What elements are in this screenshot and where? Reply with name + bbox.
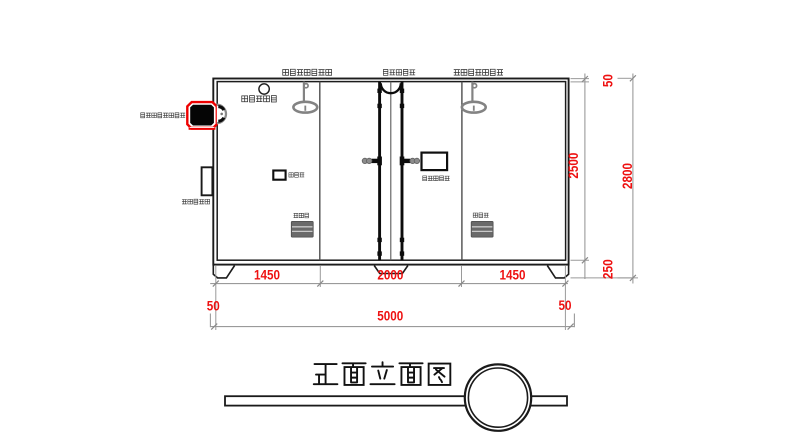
- svg-text:2500: 2500: [566, 153, 582, 179]
- svg-text:50: 50: [559, 298, 572, 314]
- svg-text:1450: 1450: [254, 268, 280, 284]
- svg-text:1450: 1450: [500, 268, 526, 284]
- svg-text:2800: 2800: [620, 163, 636, 189]
- svg-text:2000: 2000: [377, 268, 403, 284]
- svg-text:50: 50: [600, 74, 616, 87]
- svg-text:250: 250: [600, 259, 616, 279]
- svg-text:5000: 5000: [377, 309, 403, 325]
- svg-text:50: 50: [207, 299, 220, 315]
